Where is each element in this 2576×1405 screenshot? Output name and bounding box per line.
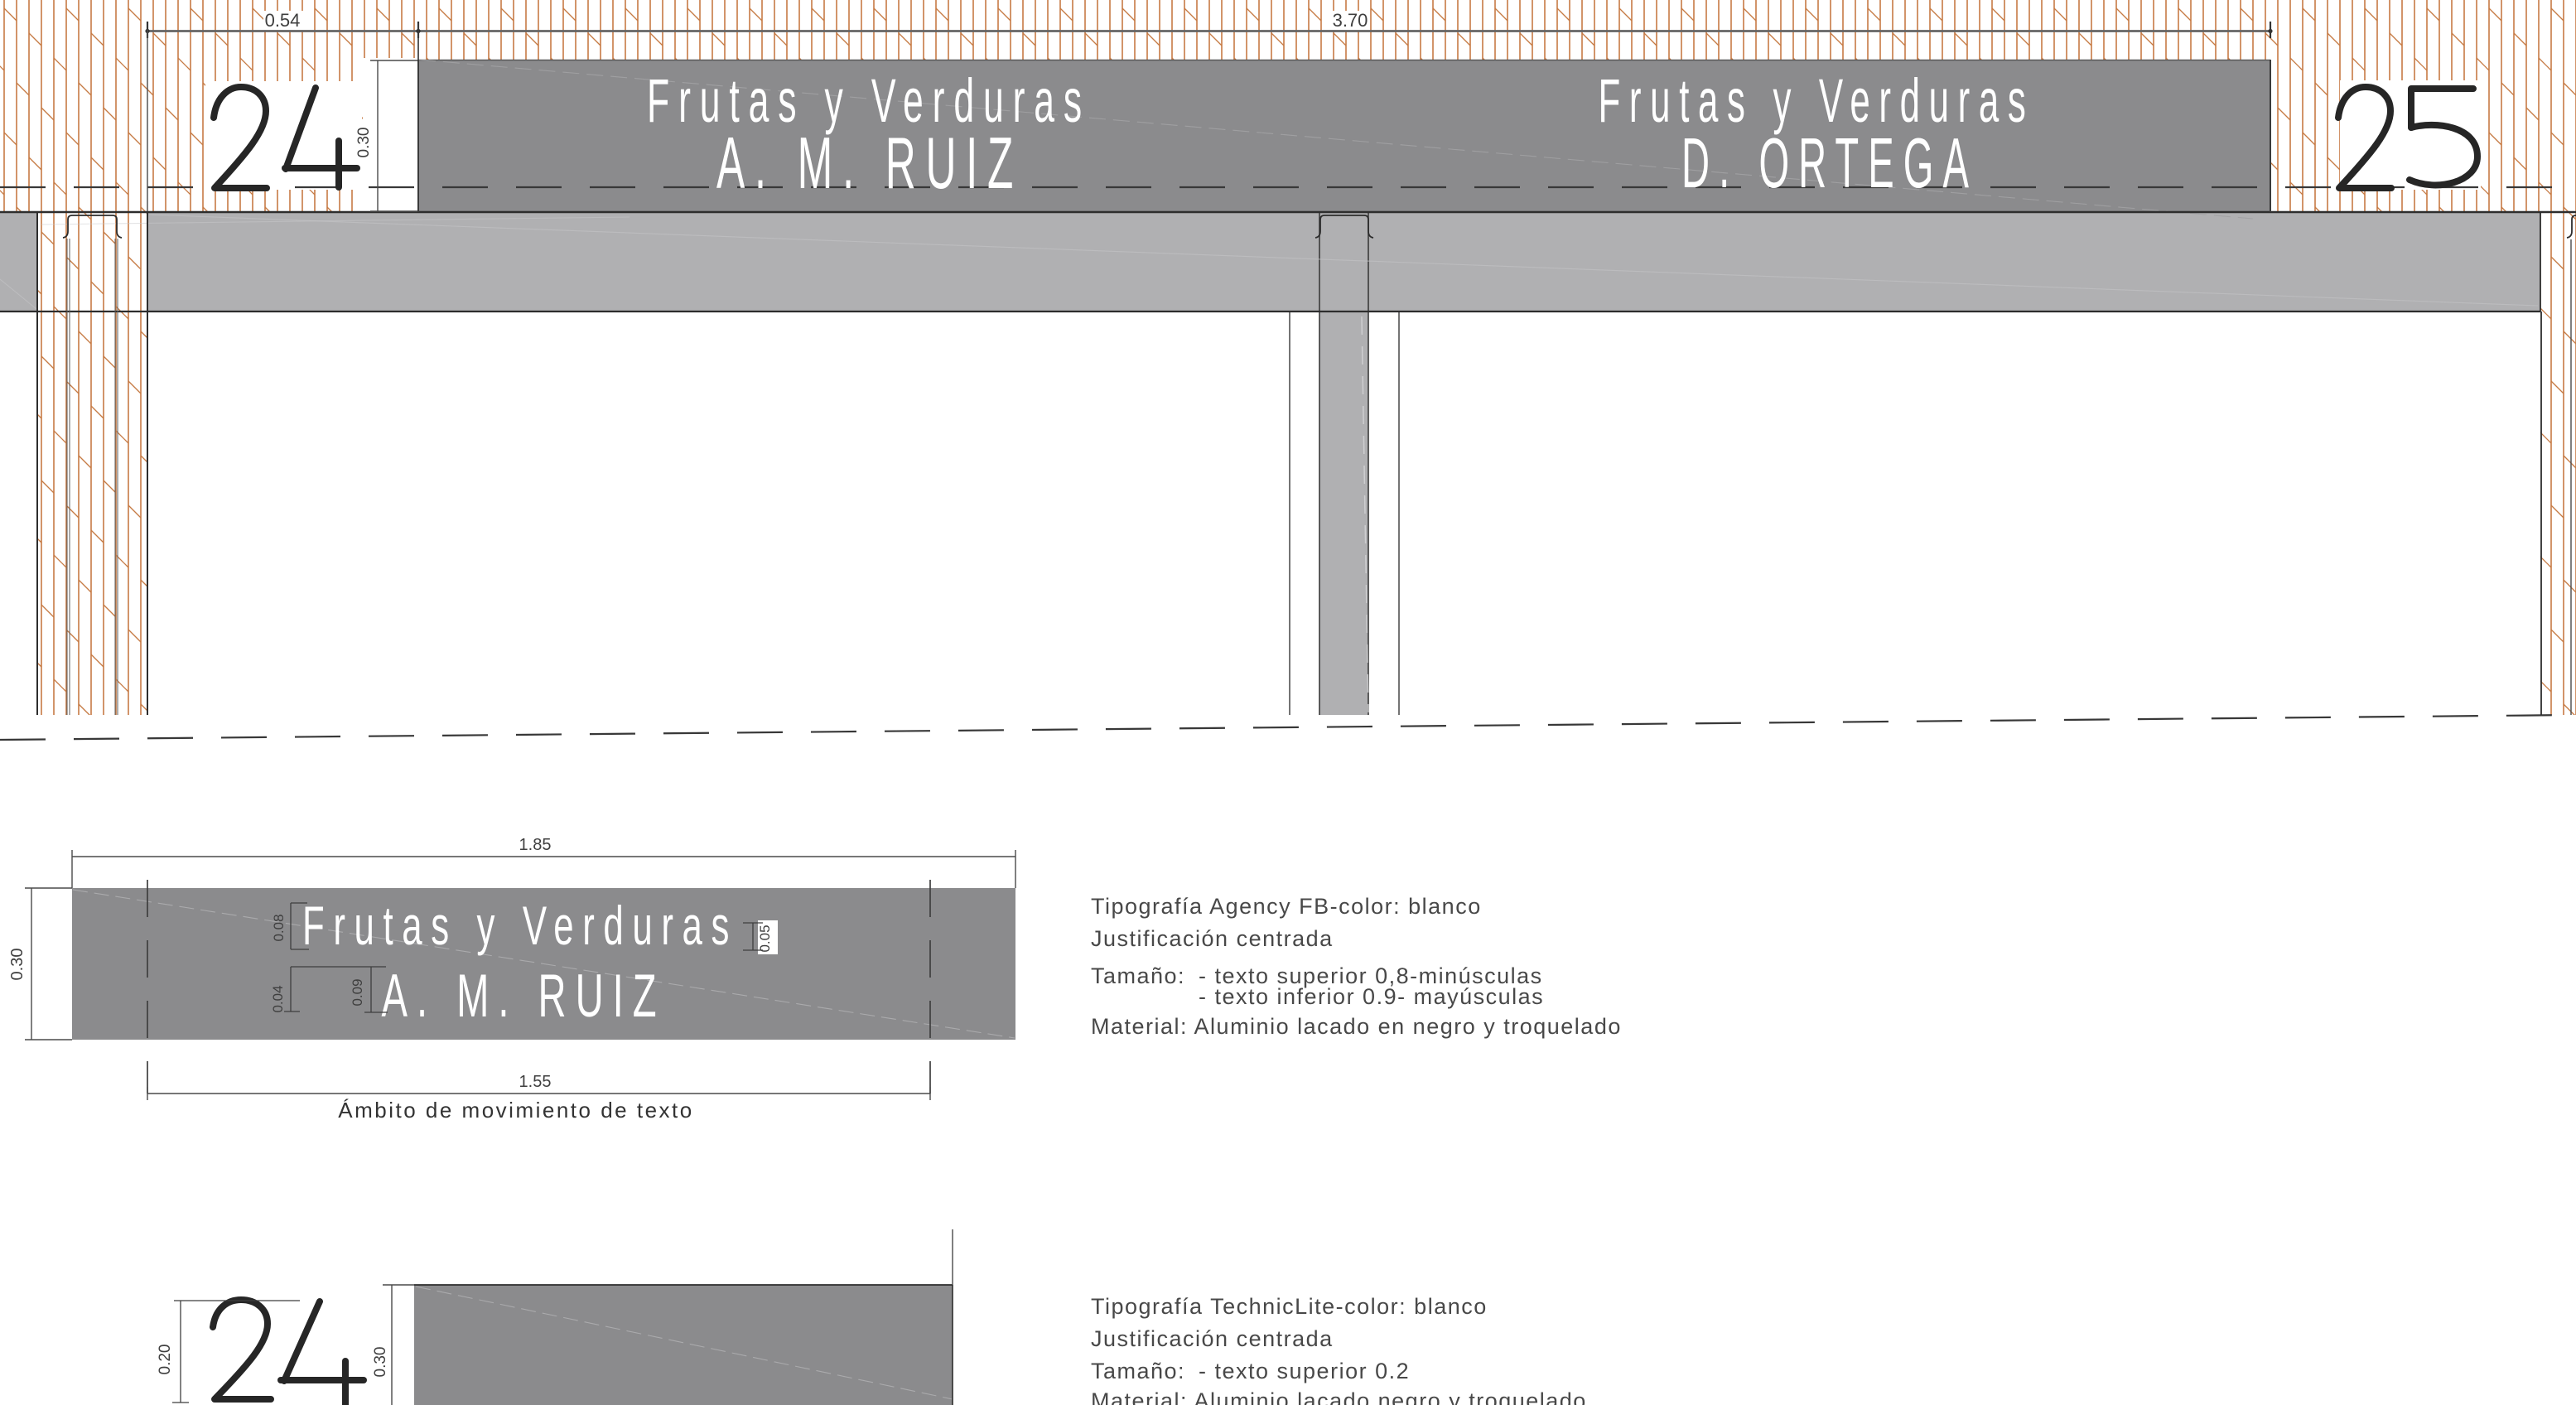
svg-text:0.09: 0.09 xyxy=(350,978,365,1006)
svg-text:Material: Aluminio lacado negr: Material: Aluminio lacado negro y troque… xyxy=(1091,1388,1587,1405)
svg-text:0.20: 0.20 xyxy=(157,1345,174,1375)
svg-text:A. M. RUIZ: A. M. RUIZ xyxy=(382,963,666,1030)
svg-text:0.30: 0.30 xyxy=(372,1347,389,1378)
svg-text:3.70: 3.70 xyxy=(1333,10,1368,31)
svg-text:0.04: 0.04 xyxy=(270,985,286,1012)
svg-text:0.08: 0.08 xyxy=(271,914,287,941)
svg-text:0.30: 0.30 xyxy=(355,128,373,158)
svg-text:Frutas y Verduras: Frutas y Verduras xyxy=(302,895,738,956)
svg-text:1.55: 1.55 xyxy=(519,1073,552,1091)
svg-text:D. ORTEGA: D. ORTEGA xyxy=(1681,124,1978,203)
svg-text:Ámbito de movimiento de texto: Ámbito de movimiento de texto xyxy=(338,1098,693,1123)
svg-text:Justificación centrada: Justificación centrada xyxy=(1091,1326,1334,1351)
svg-text:Tamaño:: Tamaño: xyxy=(1091,963,1185,988)
svg-text:Material: Aluminio lacado en n: Material: Aluminio lacado en negro y tro… xyxy=(1091,1014,1622,1039)
svg-text:0.30: 0.30 xyxy=(8,949,27,981)
svg-text:Justificación centrada: Justificación centrada xyxy=(1091,926,1334,951)
svg-text:0.54: 0.54 xyxy=(265,10,301,31)
svg-text:0.05: 0.05 xyxy=(757,925,773,952)
svg-text:Tipografía Agency FB-color: bl: Tipografía Agency FB-color: blanco xyxy=(1091,894,1482,919)
svg-text:- texto inferior 0.9- mayúscul: - texto inferior 0.9- mayúsculas xyxy=(1199,984,1544,1009)
svg-text:A. M. RUIZ: A. M. RUIZ xyxy=(716,122,1023,204)
svg-text:1.85: 1.85 xyxy=(519,836,552,854)
svg-text:Tipografía TechnicLite-color:: Tipografía TechnicLite-color: blanco xyxy=(1091,1294,1488,1319)
svg-text:Tamaño:: Tamaño: xyxy=(1091,1359,1185,1383)
svg-text:- texto superior 0.2: - texto superior 0.2 xyxy=(1199,1359,1410,1383)
